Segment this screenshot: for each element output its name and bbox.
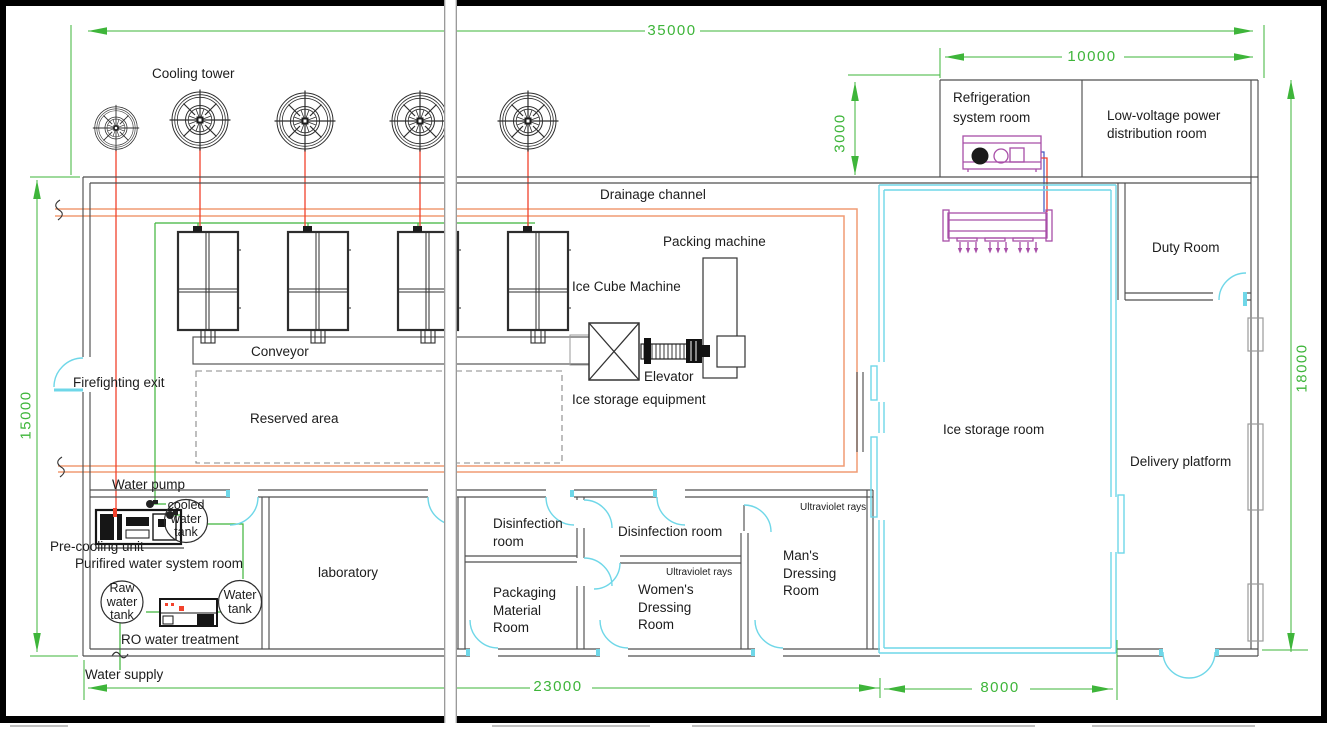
ice-cube-machines	[178, 226, 571, 343]
label-water-pump: Water pump	[112, 477, 185, 493]
dim-left-height: 15000	[19, 390, 34, 439]
label-ro-water-treatment: RO water treatment	[121, 632, 239, 648]
refrigerant-lines	[1041, 152, 1047, 212]
label-duty-room: Duty Room	[1152, 240, 1220, 256]
label-cooling-tower: Cooling tower	[152, 66, 235, 82]
label-ice-cube-machine: Ice Cube Machine	[572, 279, 681, 295]
label-disinfection-room-1: Disinfection room	[493, 515, 563, 550]
dim-bottom-left-width: 23000	[533, 679, 582, 694]
label-drainage-channel: Drainage channel	[600, 187, 706, 203]
dim-annex-height: 3000	[833, 113, 848, 152]
label-delivery-platform: Delivery platform	[1130, 454, 1231, 470]
label-uv-rays-mens: Ultraviolet rays	[800, 502, 866, 514]
label-elevator: Elevator	[644, 369, 694, 385]
evaporator-symbol	[943, 210, 1052, 254]
label-water-supply: Water supply	[85, 667, 163, 683]
label-purified-water-system-room: Purifired water system room	[75, 556, 243, 572]
floor-plan-drawing: 35000 10000 3000 15000 18000 23000 8000 …	[0, 0, 1327, 729]
label-laboratory: laboratory	[318, 565, 378, 581]
label-reserved-area: Reserved area	[250, 411, 339, 427]
label-cooled-water-tank: cooled water tank	[168, 499, 205, 540]
label-uv-rays-womens: Ultraviolet rays	[666, 567, 732, 579]
ice-storage-equipment-symbol	[570, 258, 745, 380]
ice-storage-room-walls	[871, 185, 1124, 653]
label-mans-dressing-room: Man's Dressing Room	[783, 547, 836, 600]
label-packaging-material-room: Packaging Material Room	[493, 584, 556, 637]
water-pipes	[112, 223, 535, 670]
refrigeration-unit-symbol	[963, 136, 1041, 172]
dim-bottom-right-width: 8000	[980, 680, 1019, 695]
label-water-tank: Water tank	[224, 589, 257, 616]
dim-right-height: 18000	[1295, 343, 1310, 392]
label-raw-water-tank: Raw water tank	[107, 582, 138, 623]
dim-total-width: 35000	[647, 23, 696, 38]
page-split-gap	[444, 0, 457, 723]
label-conveyor: Conveyor	[251, 344, 309, 360]
label-refrigeration-system-room: Refrigeration system room	[953, 88, 1030, 128]
cooling-tower-fans	[93, 90, 559, 152]
label-womens-dressing-room: Women's Dressing Room	[638, 581, 694, 634]
label-disinfection-room-2: Disinfection room	[618, 524, 722, 540]
label-ice-storage-equipment: Ice storage equipment	[572, 392, 706, 408]
label-low-voltage-room: Low-voltage power distribution room	[1107, 107, 1220, 142]
dim-annex-width: 10000	[1067, 49, 1116, 64]
ro-water-treatment-symbol	[160, 599, 217, 626]
label-firefighting-exit: Firefighting exit	[73, 375, 165, 391]
label-packing-machine: Packing machine	[663, 234, 766, 250]
label-ice-storage-room: Ice storage room	[943, 422, 1044, 438]
label-pre-cooling-unit: Pre-cooling unit	[50, 539, 144, 555]
